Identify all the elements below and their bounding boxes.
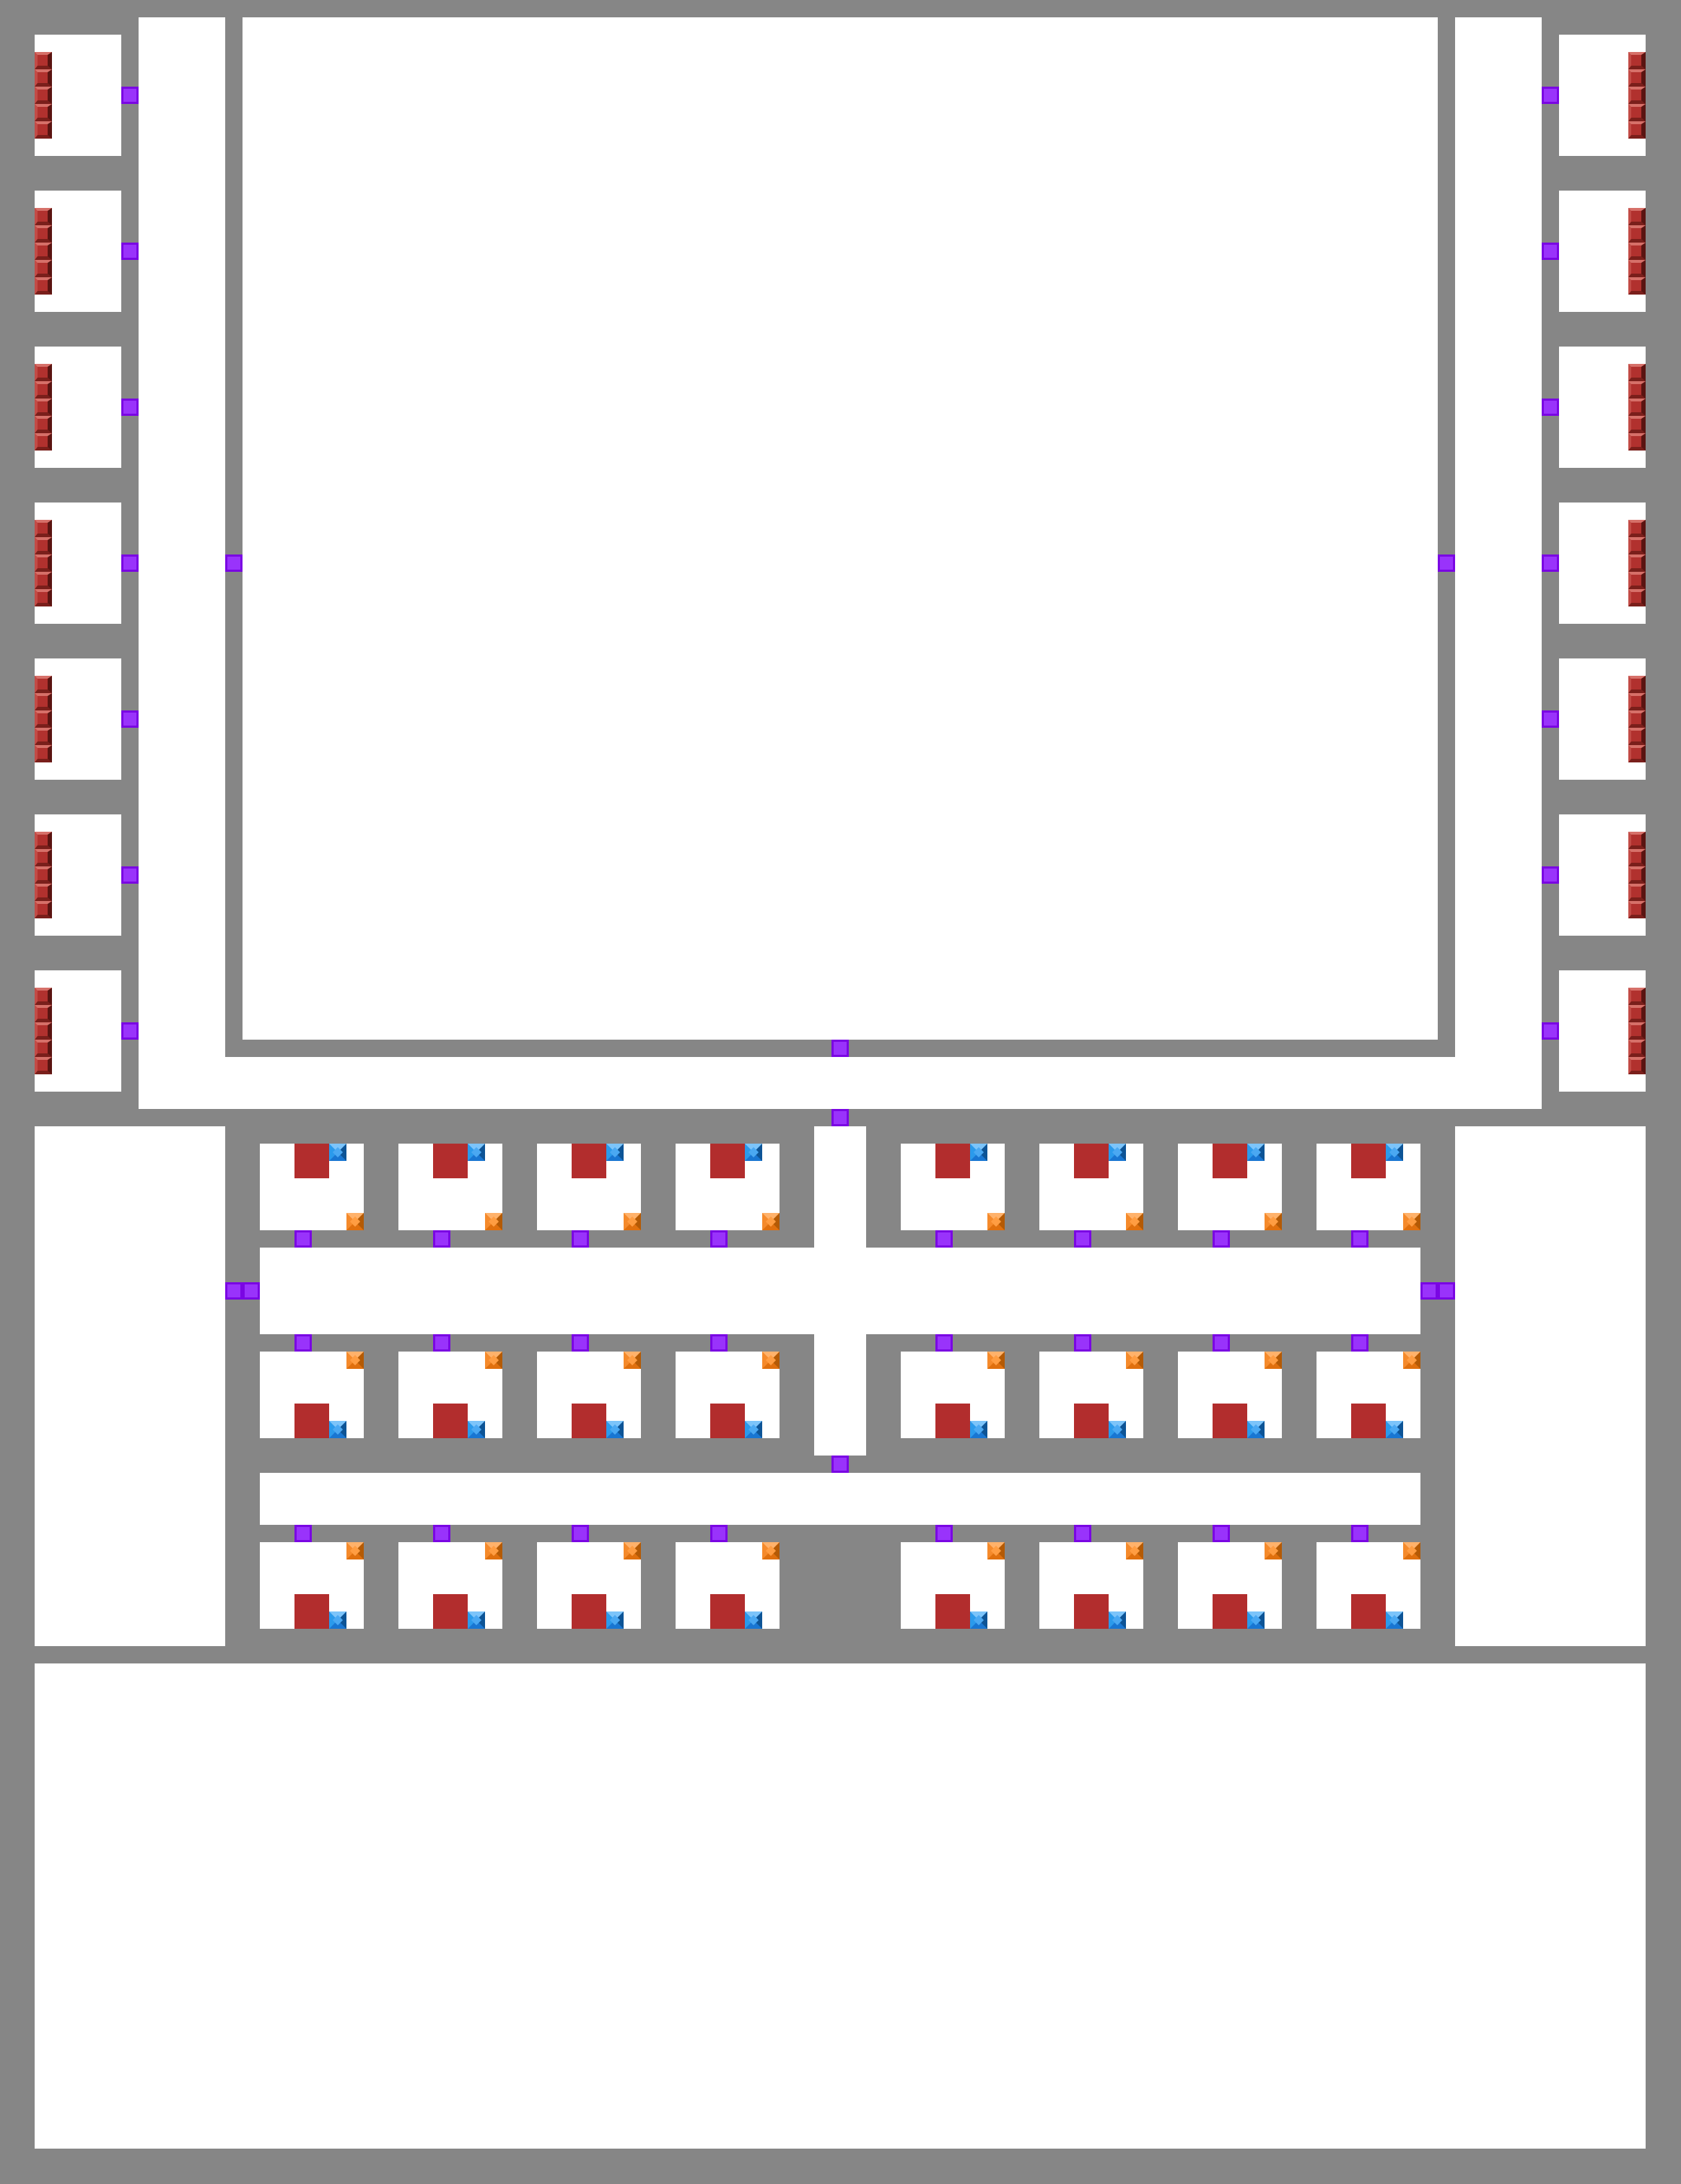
orange-pyramid-cap xyxy=(627,1217,637,1227)
red-block xyxy=(1628,104,1646,121)
orange-pyramid-cap xyxy=(1130,1217,1140,1227)
door[interactable] xyxy=(121,554,139,572)
bed[interactable] xyxy=(294,1144,329,1178)
orange-pyramid-cap xyxy=(627,1355,637,1365)
door[interactable] xyxy=(1074,1334,1091,1352)
orange-pyramid-cap xyxy=(1407,1546,1417,1556)
door[interactable] xyxy=(433,1525,450,1542)
bottom-hall xyxy=(35,1663,1646,2149)
door[interactable] xyxy=(225,554,243,572)
red-block xyxy=(35,554,52,572)
orange-pyramid[interactable] xyxy=(1265,1542,1282,1559)
blue-pyramid[interactable] xyxy=(745,1144,762,1161)
blue-pyramid[interactable] xyxy=(1386,1144,1403,1161)
red-block xyxy=(35,1057,52,1074)
door[interactable] xyxy=(1420,1282,1438,1300)
bed[interactable] xyxy=(433,1144,468,1178)
door[interactable] xyxy=(1213,1334,1230,1352)
red-block xyxy=(35,1022,52,1040)
tile-map-scene xyxy=(0,0,1681,2184)
bed[interactable] xyxy=(1351,1594,1386,1629)
door[interactable] xyxy=(294,1334,312,1352)
orange-pyramid-cap xyxy=(1268,1217,1278,1227)
bed[interactable] xyxy=(294,1404,329,1438)
door[interactable] xyxy=(831,1109,849,1126)
center-passage xyxy=(814,1126,866,1456)
central-hall xyxy=(243,17,1438,1040)
red-block xyxy=(35,364,52,381)
door[interactable] xyxy=(710,1334,728,1352)
door[interactable] xyxy=(1438,1282,1455,1300)
door[interactable] xyxy=(433,1230,450,1248)
blue-pyramid-cap xyxy=(333,1424,343,1435)
bed[interactable] xyxy=(1074,1404,1109,1438)
red-block xyxy=(1628,1022,1646,1040)
blue-pyramid[interactable] xyxy=(970,1421,987,1438)
red-block xyxy=(1628,69,1646,87)
orange-pyramid[interactable] xyxy=(1403,1352,1420,1369)
blue-pyramid-cap xyxy=(333,1615,343,1625)
door[interactable] xyxy=(1542,1022,1559,1040)
red-block xyxy=(35,693,52,710)
bed[interactable] xyxy=(1213,1144,1247,1178)
red-block xyxy=(1628,433,1646,451)
red-block xyxy=(1628,1057,1646,1074)
bed[interactable] xyxy=(710,1404,745,1438)
red-block-stack[interactable] xyxy=(1628,988,1646,1074)
orange-pyramid-cap xyxy=(1268,1355,1278,1365)
blue-pyramid[interactable] xyxy=(329,1421,346,1438)
red-block-stack[interactable] xyxy=(1628,520,1646,606)
red-block xyxy=(1628,1005,1646,1022)
red-block xyxy=(35,381,52,399)
blue-pyramid[interactable] xyxy=(606,1144,624,1161)
orange-pyramid-cap xyxy=(1130,1355,1140,1365)
blue-pyramid[interactable] xyxy=(606,1611,624,1629)
bed[interactable] xyxy=(935,1404,970,1438)
orange-pyramid-cap xyxy=(991,1546,1001,1556)
orange-pyramid[interactable] xyxy=(1126,1542,1143,1559)
bed[interactable] xyxy=(710,1594,745,1629)
orange-pyramid-cap xyxy=(1407,1355,1417,1365)
blue-pyramid[interactable] xyxy=(745,1421,762,1438)
orange-pyramid[interactable] xyxy=(987,1352,1005,1369)
lower-corridor xyxy=(139,1057,1542,1109)
blue-pyramid[interactable] xyxy=(606,1421,624,1438)
red-block xyxy=(35,1040,52,1057)
red-block xyxy=(1628,520,1646,537)
red-block xyxy=(1628,537,1646,554)
red-block xyxy=(35,676,52,693)
red-block xyxy=(1628,381,1646,399)
red-block xyxy=(35,728,52,745)
door[interactable] xyxy=(831,1040,849,1057)
red-block xyxy=(1628,364,1646,381)
orange-pyramid[interactable] xyxy=(987,1213,1005,1230)
red-block-stack[interactable] xyxy=(35,364,52,451)
orange-pyramid-cap xyxy=(1407,1217,1417,1227)
blue-pyramid-cap xyxy=(974,1147,984,1157)
blue-pyramid[interactable] xyxy=(1109,1144,1126,1161)
orange-pyramid[interactable] xyxy=(762,1213,780,1230)
door[interactable] xyxy=(1351,1334,1368,1352)
door[interactable] xyxy=(433,1334,450,1352)
red-block xyxy=(35,884,52,901)
door[interactable] xyxy=(710,1230,728,1248)
blue-pyramid-cap xyxy=(974,1615,984,1625)
blue-pyramid-cap xyxy=(1112,1424,1122,1435)
blue-pyramid[interactable] xyxy=(468,1144,485,1161)
door[interactable] xyxy=(1542,87,1559,104)
door[interactable] xyxy=(294,1525,312,1542)
orange-pyramid-cap xyxy=(627,1546,637,1556)
door[interactable] xyxy=(1542,243,1559,260)
red-block xyxy=(1628,988,1646,1005)
door[interactable] xyxy=(572,1525,589,1542)
red-block xyxy=(1628,901,1646,918)
red-block xyxy=(1628,832,1646,849)
red-block xyxy=(1628,728,1646,745)
red-block xyxy=(35,1005,52,1022)
red-block-stack[interactable] xyxy=(1628,364,1646,451)
red-block xyxy=(1628,710,1646,728)
red-block-stack[interactable] xyxy=(35,676,52,762)
blue-pyramid[interactable] xyxy=(1247,1421,1265,1438)
bed[interactable] xyxy=(433,1594,468,1629)
cell-corridor-2 xyxy=(260,1473,1420,1525)
red-block xyxy=(35,901,52,918)
blue-pyramid[interactable] xyxy=(970,1144,987,1161)
door[interactable] xyxy=(294,1230,312,1248)
blue-pyramid-cap xyxy=(610,1147,620,1157)
blue-pyramid-cap xyxy=(471,1615,481,1625)
blue-pyramid[interactable] xyxy=(329,1611,346,1629)
blue-pyramid-cap xyxy=(610,1615,620,1625)
tall-room-left xyxy=(35,1126,225,1646)
red-block xyxy=(35,988,52,1005)
bed[interactable] xyxy=(1351,1144,1386,1178)
red-block-stack[interactable] xyxy=(35,208,52,295)
blue-pyramid-cap xyxy=(1251,1615,1261,1625)
door[interactable] xyxy=(935,1525,953,1542)
blue-pyramid[interactable] xyxy=(1247,1611,1265,1629)
orange-pyramid[interactable] xyxy=(624,1213,641,1230)
blue-pyramid[interactable] xyxy=(1386,1421,1403,1438)
blue-pyramid[interactable] xyxy=(1386,1611,1403,1629)
tall-room-right xyxy=(1455,1126,1646,1646)
red-block-stack[interactable] xyxy=(1628,208,1646,295)
door[interactable] xyxy=(121,710,139,728)
red-block xyxy=(1628,260,1646,277)
bed[interactable] xyxy=(1351,1404,1386,1438)
orange-pyramid[interactable] xyxy=(1403,1213,1420,1230)
orange-pyramid[interactable] xyxy=(987,1542,1005,1559)
blue-pyramid-cap xyxy=(1112,1615,1122,1625)
bed[interactable] xyxy=(935,1594,970,1629)
red-block xyxy=(35,866,52,884)
door[interactable] xyxy=(1542,554,1559,572)
corridor-right xyxy=(1455,17,1542,1109)
red-block-stack[interactable] xyxy=(1628,52,1646,139)
orange-pyramid[interactable] xyxy=(1265,1352,1282,1369)
red-block xyxy=(1628,399,1646,416)
blue-pyramid[interactable] xyxy=(468,1421,485,1438)
bed[interactable] xyxy=(710,1144,745,1178)
bed[interactable] xyxy=(572,1404,606,1438)
door[interactable] xyxy=(1542,399,1559,416)
orange-pyramid-cap xyxy=(766,1355,776,1365)
orange-pyramid[interactable] xyxy=(485,1213,502,1230)
orange-pyramid-cap xyxy=(350,1217,360,1227)
red-block xyxy=(35,121,52,139)
blue-pyramid-cap xyxy=(748,1424,759,1435)
red-block xyxy=(35,433,52,451)
orange-pyramid-cap xyxy=(489,1546,499,1556)
door[interactable] xyxy=(121,243,139,260)
blue-pyramid[interactable] xyxy=(468,1611,485,1629)
blue-pyramid[interactable] xyxy=(329,1144,346,1161)
red-block xyxy=(35,87,52,104)
orange-pyramid[interactable] xyxy=(1265,1213,1282,1230)
red-block-stack[interactable] xyxy=(1628,676,1646,762)
blue-pyramid-cap xyxy=(1389,1424,1400,1435)
red-block xyxy=(35,52,52,69)
bed[interactable] xyxy=(1074,1594,1109,1629)
red-block xyxy=(1628,121,1646,139)
red-block xyxy=(1628,589,1646,606)
orange-pyramid[interactable] xyxy=(1126,1213,1143,1230)
door[interactable] xyxy=(1213,1230,1230,1248)
door[interactable] xyxy=(572,1334,589,1352)
red-block xyxy=(35,243,52,260)
red-block xyxy=(35,832,52,849)
orange-pyramid-cap xyxy=(489,1217,499,1227)
door[interactable] xyxy=(710,1525,728,1542)
blue-pyramid-cap xyxy=(471,1424,481,1435)
blue-pyramid-cap xyxy=(1251,1424,1261,1435)
door[interactable] xyxy=(243,1282,260,1300)
red-block xyxy=(35,416,52,433)
red-block xyxy=(35,277,52,295)
red-block xyxy=(1628,554,1646,572)
red-block xyxy=(1628,745,1646,762)
red-block xyxy=(35,208,52,225)
red-block-stack[interactable] xyxy=(1628,832,1646,918)
red-block xyxy=(35,849,52,866)
orange-pyramid[interactable] xyxy=(346,1352,364,1369)
blue-pyramid-cap xyxy=(974,1424,984,1435)
bed[interactable] xyxy=(1074,1144,1109,1178)
red-block xyxy=(1628,243,1646,260)
red-block-stack[interactable] xyxy=(35,52,52,139)
blue-pyramid[interactable] xyxy=(970,1611,987,1629)
red-block xyxy=(35,572,52,589)
door[interactable] xyxy=(1074,1525,1091,1542)
door[interactable] xyxy=(1438,554,1455,572)
red-block xyxy=(35,745,52,762)
red-block xyxy=(1628,277,1646,295)
red-block xyxy=(1628,208,1646,225)
orange-pyramid-cap xyxy=(350,1355,360,1365)
blue-pyramid-cap xyxy=(748,1615,759,1625)
orange-pyramid-cap xyxy=(766,1546,776,1556)
red-block xyxy=(35,537,52,554)
orange-pyramid-cap xyxy=(1268,1546,1278,1556)
red-block xyxy=(1628,416,1646,433)
door[interactable] xyxy=(225,1282,243,1300)
bed[interactable] xyxy=(294,1594,329,1629)
orange-pyramid-cap xyxy=(991,1355,1001,1365)
red-block xyxy=(1628,87,1646,104)
bed[interactable] xyxy=(1213,1594,1247,1629)
door[interactable] xyxy=(1213,1525,1230,1542)
blue-pyramid-cap xyxy=(1389,1147,1400,1157)
orange-pyramid-cap xyxy=(766,1217,776,1227)
orange-pyramid[interactable] xyxy=(346,1213,364,1230)
orange-pyramid-cap xyxy=(991,1217,1001,1227)
door[interactable] xyxy=(1542,866,1559,884)
blue-pyramid[interactable] xyxy=(1109,1421,1126,1438)
blue-pyramid-cap xyxy=(471,1147,481,1157)
blue-pyramid-cap xyxy=(1251,1147,1261,1157)
red-block xyxy=(1628,1040,1646,1057)
bed[interactable] xyxy=(433,1404,468,1438)
orange-pyramid[interactable] xyxy=(762,1542,780,1559)
door[interactable] xyxy=(121,87,139,104)
red-block-stack[interactable] xyxy=(35,832,52,918)
red-block xyxy=(35,104,52,121)
red-block xyxy=(1628,866,1646,884)
orange-pyramid[interactable] xyxy=(624,1352,641,1369)
door[interactable] xyxy=(1351,1230,1368,1248)
orange-pyramid[interactable] xyxy=(1126,1352,1143,1369)
red-block xyxy=(35,225,52,243)
bed[interactable] xyxy=(935,1144,970,1178)
door[interactable] xyxy=(935,1334,953,1352)
door[interactable] xyxy=(1351,1525,1368,1542)
blue-pyramid-cap xyxy=(748,1147,759,1157)
door[interactable] xyxy=(831,1456,849,1473)
red-block xyxy=(1628,676,1646,693)
red-block xyxy=(1628,884,1646,901)
blue-pyramid[interactable] xyxy=(745,1611,762,1629)
corridor-left xyxy=(139,17,225,1109)
orange-pyramid[interactable] xyxy=(1403,1542,1420,1559)
red-block xyxy=(1628,225,1646,243)
red-block xyxy=(1628,52,1646,69)
orange-pyramid[interactable] xyxy=(762,1352,780,1369)
blue-pyramid-cap xyxy=(1389,1615,1400,1625)
door[interactable] xyxy=(935,1230,953,1248)
door[interactable] xyxy=(121,866,139,884)
red-block xyxy=(35,520,52,537)
red-block-stack[interactable] xyxy=(35,988,52,1074)
blue-pyramid-cap xyxy=(610,1424,620,1435)
orange-pyramid[interactable] xyxy=(485,1352,502,1369)
blue-pyramid-cap xyxy=(1112,1147,1122,1157)
red-block xyxy=(35,399,52,416)
door[interactable] xyxy=(572,1230,589,1248)
blue-pyramid[interactable] xyxy=(1109,1611,1126,1629)
door[interactable] xyxy=(1542,710,1559,728)
red-block xyxy=(1628,693,1646,710)
blue-pyramid-cap xyxy=(333,1147,343,1157)
blue-pyramid[interactable] xyxy=(1247,1144,1265,1161)
red-block xyxy=(35,589,52,606)
bed[interactable] xyxy=(572,1144,606,1178)
orange-pyramid[interactable] xyxy=(485,1542,502,1559)
red-block xyxy=(1628,849,1646,866)
red-block xyxy=(1628,572,1646,589)
red-block xyxy=(35,710,52,728)
orange-pyramid[interactable] xyxy=(346,1542,364,1559)
door[interactable] xyxy=(121,399,139,416)
orange-pyramid-cap xyxy=(1130,1546,1140,1556)
red-block xyxy=(35,69,52,87)
orange-pyramid-cap xyxy=(350,1546,360,1556)
bed[interactable] xyxy=(1213,1404,1247,1438)
red-block xyxy=(35,260,52,277)
bed[interactable] xyxy=(572,1594,606,1629)
orange-pyramid[interactable] xyxy=(624,1542,641,1559)
red-block-stack[interactable] xyxy=(35,520,52,606)
door[interactable] xyxy=(1074,1230,1091,1248)
orange-pyramid-cap xyxy=(489,1355,499,1365)
door[interactable] xyxy=(121,1022,139,1040)
